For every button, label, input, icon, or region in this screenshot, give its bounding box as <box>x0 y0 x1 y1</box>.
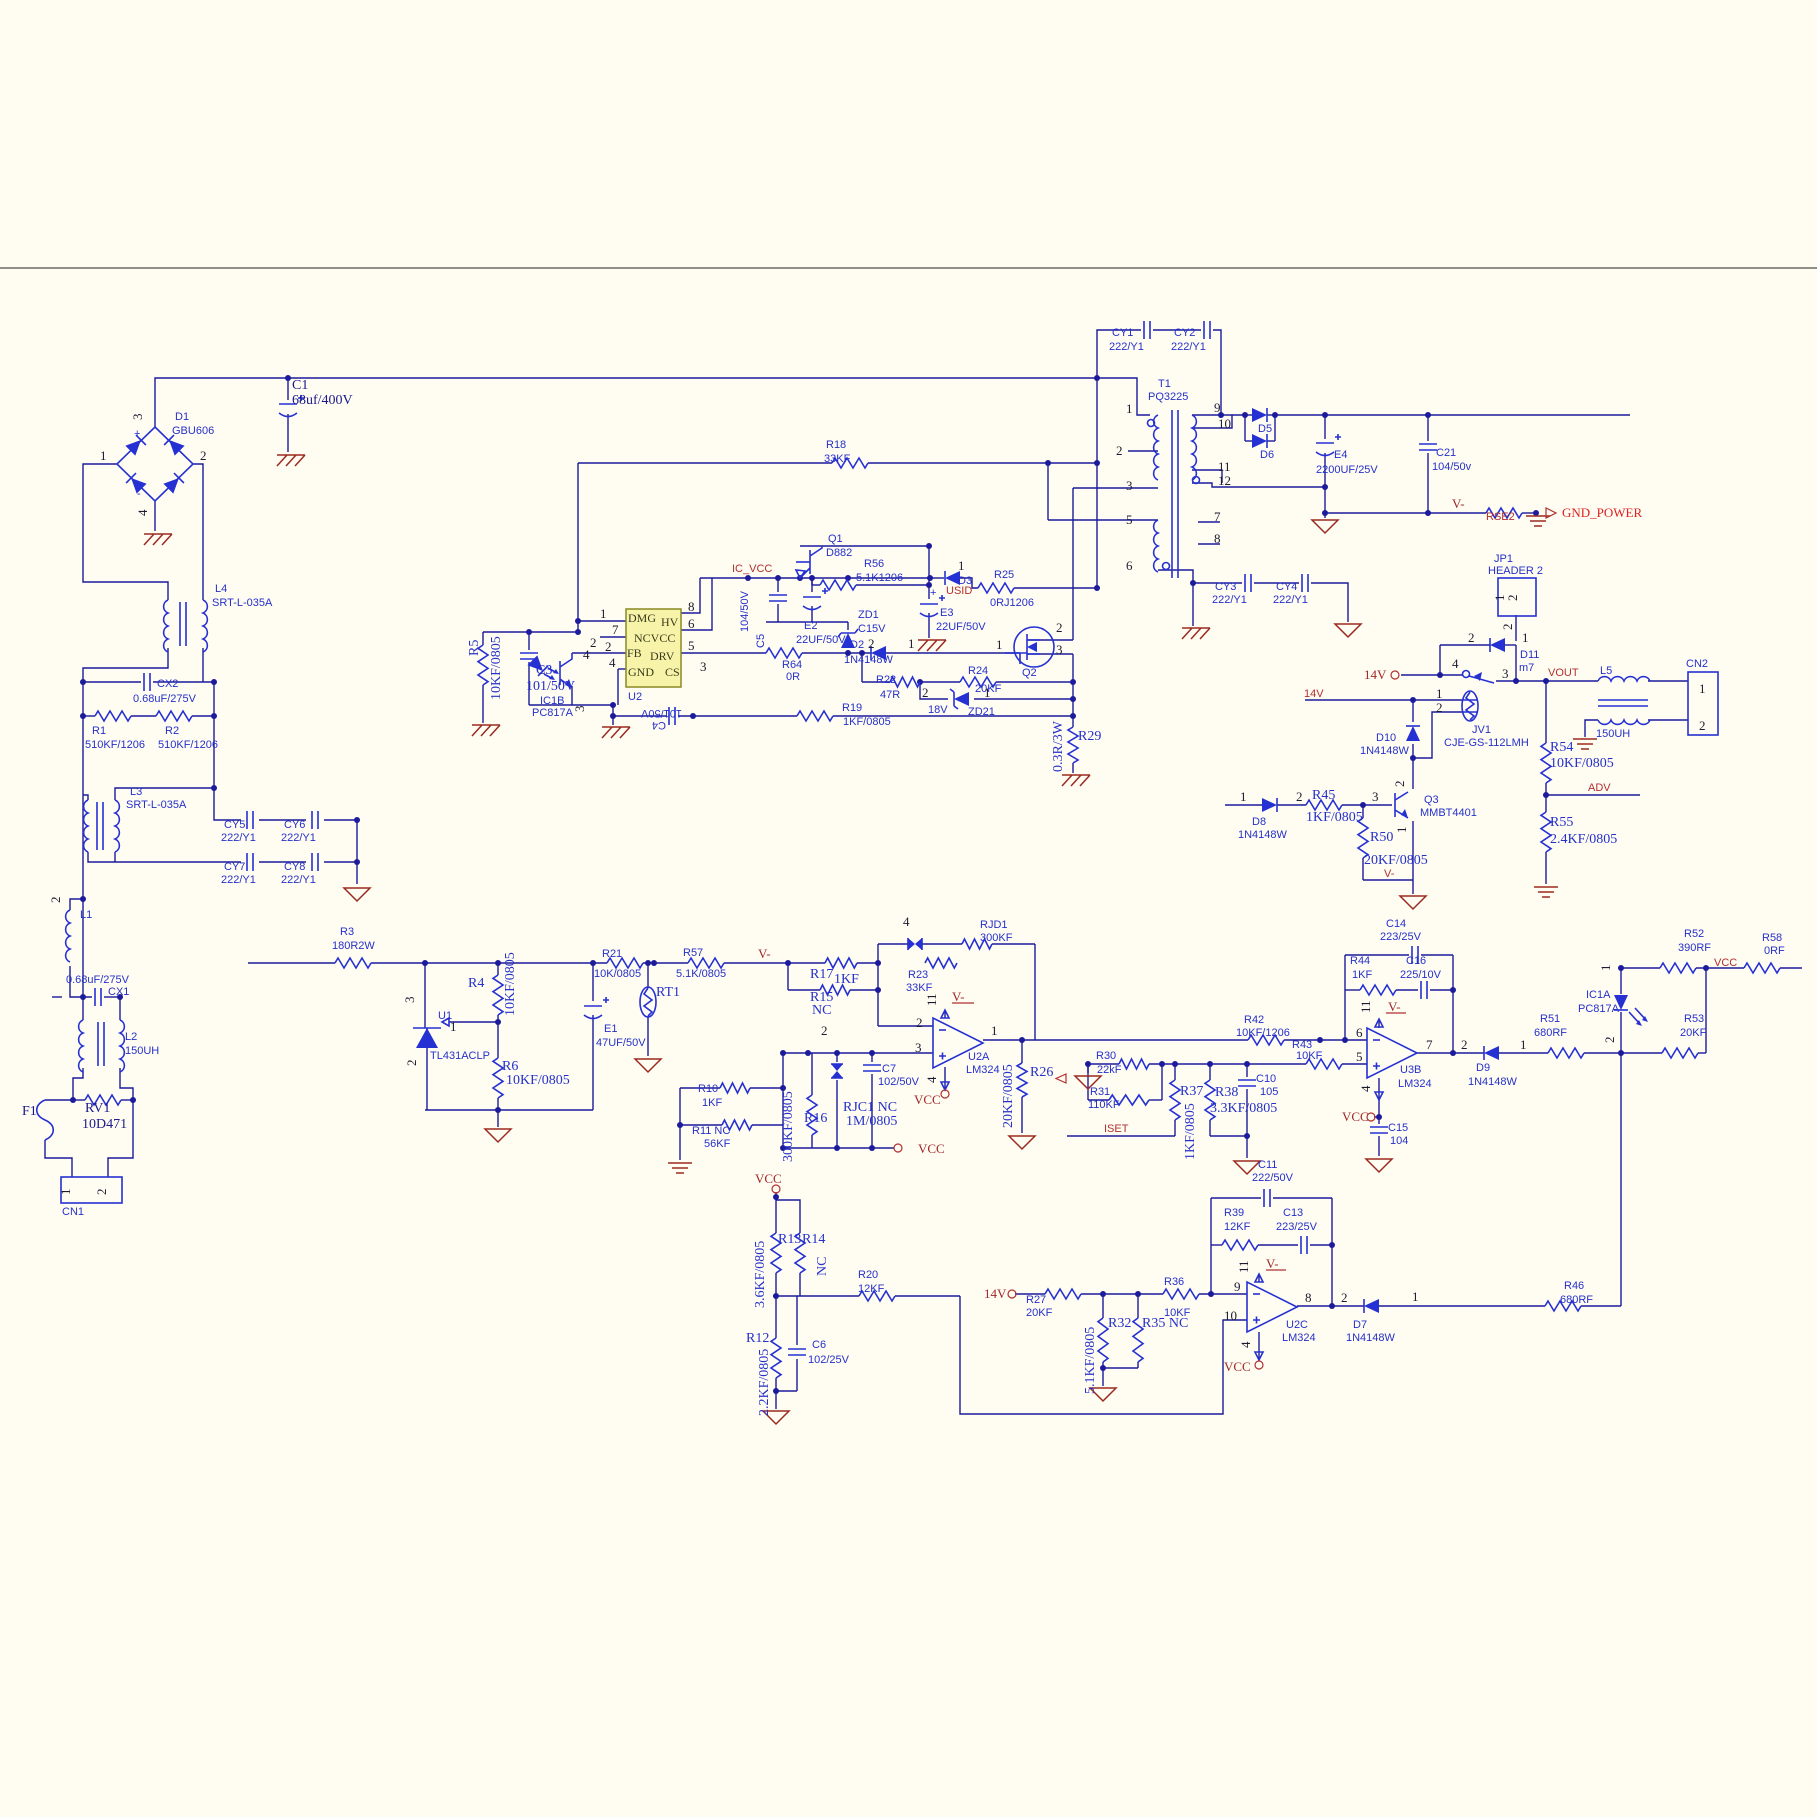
label-v-: V- <box>1388 999 1401 1014</box>
label-22kf: 22kF <box>1097 1064 1122 1076</box>
label-r46: R46 <box>1564 1280 1584 1292</box>
label-1: 1 <box>1436 686 1443 701</box>
label-vcc: VCC <box>1342 1109 1369 1124</box>
label-223-25v: 223/25V <box>1276 1221 1318 1233</box>
label-rjd1: RJD1 <box>980 919 1008 931</box>
label-10: 10 <box>1218 416 1231 431</box>
label-11: 11 <box>1236 1260 1251 1273</box>
label-10kf-0805: 10KF/0805 <box>1550 756 1614 771</box>
label-r20: R20 <box>858 1269 878 1281</box>
label-r23: R23 <box>908 969 928 981</box>
label-2-2kf-0805: 2.2KF/0805 <box>757 1349 772 1416</box>
label-8: 8 <box>1305 1290 1312 1305</box>
label-r25: R25 <box>994 569 1014 581</box>
label-10kf-0805: 10KF/0805 <box>506 1073 570 1088</box>
label-68uf-400v: 68uf/400V <box>292 393 353 408</box>
label-srt-l-035a: SRT-L-035A <box>212 597 273 609</box>
label-f1: F1 <box>22 1104 37 1119</box>
label-104-50v: 104/50V <box>739 590 751 632</box>
label-10kf-0805: 10KF/0805 <box>503 952 518 1016</box>
label-r19: R19 <box>842 702 862 714</box>
label-r1: R1 <box>92 725 106 737</box>
label-cy1: CY1 <box>1112 327 1133 339</box>
label-m7: m7 <box>1519 662 1534 674</box>
label-6: 6 <box>1126 558 1133 573</box>
label-1: 1 <box>908 636 915 651</box>
label-c15v: C15V <box>858 623 886 635</box>
label-e3: E3 <box>940 607 953 619</box>
label-5: 5 <box>1356 1049 1363 1064</box>
label-r30: R30 <box>1096 1050 1116 1062</box>
label-v-: V- <box>1266 1256 1279 1271</box>
label-11: 11 <box>1358 1000 1373 1013</box>
label-srt-l-035a: SRT-L-035A <box>126 799 187 811</box>
label-1: 1 <box>991 1023 998 1038</box>
label-r50: R50 <box>1370 830 1393 845</box>
label-c5: C5 <box>755 634 767 648</box>
label-c6: C6 <box>812 1339 826 1351</box>
label-4: 4 <box>135 509 150 516</box>
label-ncvcc: NCVCC <box>634 631 675 645</box>
label-l3: L3 <box>130 786 142 798</box>
label-d882: D882 <box>826 547 852 559</box>
label-222-y1: 222/Y1 <box>281 874 316 886</box>
label-q3: Q3 <box>1424 794 1439 806</box>
label-7: 7 <box>1214 509 1221 524</box>
label-2: 2 <box>48 897 63 904</box>
label-u2c: U2C <box>1286 1319 1308 1331</box>
label-vcc: VCC <box>755 1171 782 1186</box>
label-r55: R55 <box>1550 815 1573 830</box>
label-2: 2 <box>1296 789 1303 804</box>
label-lm324: LM324 <box>1282 1332 1316 1344</box>
label-1n4148w: 1N4148W <box>844 654 894 666</box>
label-2-4kf-0805: 2.4KF/0805 <box>1550 832 1617 847</box>
label-1m-0805: 1M/0805 <box>846 1114 897 1129</box>
label-d10: D10 <box>1376 732 1396 744</box>
label-r3: R3 <box>340 926 354 938</box>
label-510kf-1206: 510KF/1206 <box>85 739 145 751</box>
label-gbu606: GBU606 <box>172 425 214 437</box>
label-u2: U2 <box>628 691 642 703</box>
label-r31: R31 <box>1090 1086 1110 1098</box>
label-header-2: HEADER 2 <box>1488 565 1543 577</box>
label-2: 2 <box>1056 620 1063 635</box>
label-jv1: JV1 <box>1472 724 1491 736</box>
label-2: 2 <box>1392 781 1407 788</box>
label-10kf-1206: 10KF/1206 <box>1236 1027 1290 1039</box>
label-ic1a: IC1A <box>1586 989 1611 1001</box>
label-20kf: 20KF <box>1680 1027 1707 1039</box>
label-r18: R18 <box>826 439 846 451</box>
label-510kf-1206: 510KF/1206 <box>158 739 218 751</box>
label-2: 2 <box>1116 443 1123 458</box>
label-r5: R5 <box>467 640 482 656</box>
label-r56: R56 <box>864 558 884 570</box>
label-r6: R6 <box>502 1059 518 1074</box>
label-5-1k-0805: 5.1K/0805 <box>676 968 726 980</box>
label-l5: L5 <box>1600 665 1612 677</box>
label-150uh: 150UH <box>1596 728 1630 740</box>
label-1n4148w: 1N4148W <box>1468 1076 1518 1088</box>
label-20kf-0805: 20KF/0805 <box>1364 853 1428 868</box>
label-l4: L4 <box>215 583 227 595</box>
label-1kf: 1KF <box>702 1097 722 1109</box>
label-tl431aclp: TL431ACLP <box>430 1050 490 1062</box>
label-10d471: 10D471 <box>82 1117 127 1132</box>
label-1: 1 <box>1394 827 1409 834</box>
label-pc817a: PC817A <box>1578 1003 1620 1015</box>
label-47uf-50v: 47UF/50V <box>596 1037 646 1049</box>
label-l2: L2 <box>125 1031 137 1043</box>
label-r54: R54 <box>1550 740 1573 755</box>
label-3: 3 <box>700 659 707 674</box>
label-2: 2 <box>94 1189 109 1196</box>
label-d6: D6 <box>1260 449 1274 461</box>
label-1kf-0805: 1KF/0805 <box>843 716 891 728</box>
label-cy3: CY3 <box>1215 581 1236 593</box>
label-d11: D11 <box>1520 649 1539 661</box>
label-v-: V- <box>1452 496 1465 511</box>
label-680rf: 680RF <box>1534 1027 1567 1039</box>
label-225-10v: 225/10V <box>1400 969 1442 981</box>
label--: - <box>137 488 141 500</box>
label-10kf-0805: 10KF/0805 <box>489 636 504 700</box>
label-u3b: U3B <box>1400 1064 1421 1076</box>
label-1kf: 1KF <box>1352 969 1372 981</box>
label-3: 3 <box>1056 642 1063 657</box>
label-d2: D2 <box>850 639 864 651</box>
label-nc: NC <box>815 1257 830 1276</box>
label-2: 2 <box>605 639 612 654</box>
label-101-50v: 101/50V <box>526 679 575 694</box>
label-22uf-50v: 22UF/50V <box>796 634 846 646</box>
label-110kf: 110KF <box>1088 1099 1120 1111</box>
label-2: 2 <box>1602 1037 1617 1044</box>
label-8: 8 <box>1214 531 1221 546</box>
label-14v: 14V <box>1304 688 1324 700</box>
label-v-: V- <box>952 989 965 1004</box>
label-cx1: CX1 <box>108 986 129 998</box>
label-0-68uf-275v: 0.68uF/275V <box>133 693 197 705</box>
label-r21: R21 <box>602 948 622 960</box>
label-r39: R39 <box>1224 1207 1244 1219</box>
label-680rf: 680RF <box>1560 1294 1593 1306</box>
label-dmg: DMG <box>628 611 656 625</box>
label-223-25v: 223/25V <box>1380 931 1422 943</box>
label-1kf-0805: 1KF/0805 <box>1306 810 1363 825</box>
label-r27: R27 <box>1026 1294 1046 1306</box>
label-e1: E1 <box>604 1023 617 1035</box>
label-8: 8 <box>688 599 695 614</box>
label-5-1kf-0805: 5.1KF/0805 <box>1083 1327 1098 1394</box>
label-2: 2 <box>404 1060 419 1067</box>
label-4: 4 <box>924 1076 939 1083</box>
label-5: 5 <box>1126 512 1133 527</box>
label-r4: R4 <box>468 976 484 991</box>
label-r11-nc: R11 NC <box>692 1125 730 1137</box>
label-r37: R37 <box>1180 1084 1203 1099</box>
label-adv: ADV <box>1588 782 1611 794</box>
label-1: 1 <box>1522 630 1529 645</box>
label-6: 6 <box>688 616 695 631</box>
label-1: 1 <box>1520 1037 1527 1052</box>
label-2: 2 <box>1505 595 1520 602</box>
label-cje-gs-112lmh: CJE-GS-112LMH <box>1444 737 1529 749</box>
label-2: 2 <box>821 1023 828 1038</box>
label-c11: C11 <box>1258 1159 1277 1171</box>
label-20kf-0805: 20KF/0805 <box>1001 1064 1016 1128</box>
label-r2: R2 <box>165 725 179 737</box>
label-14v: 14V <box>1364 667 1387 682</box>
label-e2: E2 <box>804 620 817 632</box>
label-cy8: CY8 <box>284 861 305 873</box>
label-r52: R52 <box>1684 928 1704 940</box>
label-1: 1 <box>58 1189 73 1196</box>
label-vcc: VCC <box>1714 957 1737 969</box>
label-33kf: 33KF <box>824 453 851 465</box>
label-v-: V- <box>1384 868 1395 880</box>
label-4: 4 <box>1238 1341 1253 1348</box>
label-c13: C13 <box>1283 1207 1303 1219</box>
label-2: 2 <box>868 636 875 651</box>
label-q2: Q2 <box>1022 667 1037 679</box>
label-c7: C7 <box>882 1063 896 1075</box>
label-pq3225: PQ3225 <box>1148 391 1188 403</box>
label-12kf: 12KF <box>858 1283 885 1295</box>
label-1n4148w: 1N4148W <box>1346 1332 1396 1344</box>
label-q1: Q1 <box>828 533 843 545</box>
label-2: 2 <box>200 448 207 463</box>
label-r45: R45 <box>1312 788 1335 803</box>
label-6: 6 <box>1356 1025 1363 1040</box>
label-10kf: 10KF <box>1164 1307 1191 1319</box>
label-rse2: RSE2 <box>1486 511 1515 523</box>
label-d1: D1 <box>175 411 189 423</box>
label-10kf: 10KF <box>1296 1050 1323 1062</box>
label-c15: C15 <box>1388 1122 1408 1134</box>
label-2: 2 <box>1468 630 1475 645</box>
label-10: 10 <box>1224 1308 1237 1323</box>
label-2: 2 <box>590 635 597 650</box>
label-3: 3 <box>130 414 145 421</box>
label-0-68uf-275v: 0.68uF/275V <box>66 974 130 986</box>
label-22uf-50v: 22UF/50V <box>936 621 986 633</box>
label-l1: L1 <box>80 909 92 921</box>
label-cn1: CN1 <box>62 1206 84 1218</box>
label-r22: R22 <box>876 674 896 686</box>
label-2: 2 <box>1461 1037 1468 1052</box>
label-101-50v: 101/50V <box>640 707 682 719</box>
label-3: 3 <box>1502 666 1509 681</box>
label-r57: R57 <box>683 947 703 959</box>
label-r10: R10 <box>698 1083 718 1095</box>
label-c1: C1 <box>292 378 308 393</box>
label-rjc1-nc: RJC1 NC <box>843 1100 897 1115</box>
label-1: 1 <box>450 1019 457 1034</box>
label-r14: R14 <box>802 1232 825 1247</box>
label-fb: FB <box>627 646 642 660</box>
label-1: 1 <box>1240 789 1247 804</box>
label-222-y1: 222/Y1 <box>221 874 256 886</box>
schematic-canvas: C168uf/400VD1GBU6061234+-L4SRT-L-035ACX2… <box>0 0 1817 1817</box>
label-3-6kf-0805: 3.6KF/0805 <box>753 1241 768 1308</box>
label-4: 4 <box>1452 656 1459 671</box>
label-300kf-0805: 300KF/0805 <box>781 1091 796 1162</box>
label-r26: R26 <box>1030 1065 1053 1080</box>
label-zd21: ZD21 <box>968 706 995 718</box>
label-3: 3 <box>1126 478 1133 493</box>
label-d8: D8 <box>1252 816 1266 828</box>
label-cx2: CX2 <box>157 678 178 690</box>
label-4: 4 <box>609 655 616 670</box>
label-cy7: CY7 <box>224 861 245 873</box>
label-0rj1206: 0RJ1206 <box>990 597 1034 609</box>
label-cy2: CY2 <box>1174 327 1195 339</box>
label-0rf: 0RF <box>1764 945 1785 957</box>
label-9: 9 <box>1234 1279 1241 1294</box>
label-vcc: VCC <box>1224 1359 1251 1374</box>
label-222-y1: 222/Y1 <box>1109 341 1144 353</box>
label-rv1: RV1 <box>85 1101 110 1116</box>
label-7: 7 <box>612 622 619 637</box>
label-150uh: 150UH <box>125 1045 159 1057</box>
label-e4: E4 <box>1334 449 1347 461</box>
label-r36: R36 <box>1164 1276 1184 1288</box>
label-222-y1: 222/Y1 <box>1212 594 1247 606</box>
label-gnd-power: GND_POWER <box>1562 505 1642 520</box>
label-2: 2 <box>1699 718 1706 733</box>
label--: + <box>930 587 936 599</box>
label-hv: HV <box>661 615 679 629</box>
label-3: 3 <box>572 706 587 713</box>
label-3: 3 <box>915 1040 922 1055</box>
label-ic-vcc: IC_VCC <box>732 563 772 575</box>
label-18v: 18V <box>928 704 948 716</box>
label-2200uf-25v: 2200UF/25V <box>1316 464 1378 476</box>
label-9: 9 <box>1214 400 1221 415</box>
label-vout: VOUT <box>1548 667 1579 679</box>
label-1n4148w: 1N4148W <box>1238 829 1288 841</box>
label-11: 11 <box>1218 459 1231 474</box>
label-r51: R51 <box>1540 1013 1560 1025</box>
label-c4: C4 <box>652 719 666 731</box>
label-104: 104 <box>1390 1135 1408 1147</box>
label-5: 5 <box>688 638 695 653</box>
label-gnd: GND <box>628 665 654 679</box>
label-usid: USID <box>946 585 972 597</box>
label-10k-0805: 10K/0805 <box>594 968 641 980</box>
label-cy4: CY4 <box>1276 581 1297 593</box>
label-r53: R53 <box>1684 1013 1704 1025</box>
label-c14: C14 <box>1386 918 1406 930</box>
label-1: 1 <box>958 558 965 573</box>
label-iset: ISET <box>1104 1123 1129 1135</box>
label-lm324: LM324 <box>1398 1078 1432 1090</box>
label-3: 3 <box>402 997 417 1004</box>
label-180r2w: 180R2W <box>332 940 375 952</box>
label-1: 1 <box>600 606 607 621</box>
label-4: 4 <box>903 914 910 929</box>
label-r42: R42 <box>1244 1014 1264 1026</box>
label-r12: R12 <box>746 1331 769 1346</box>
label-0-3r-3w: 0.3R/3W <box>1051 720 1066 772</box>
label-2: 2 <box>1341 1290 1348 1305</box>
label-r44: R44 <box>1350 955 1370 967</box>
label-300kf: 300KF <box>980 932 1013 944</box>
labels: C168uf/400VD1GBU6061234+-L4SRT-L-035ACX2… <box>22 327 1785 1416</box>
label-cs: CS <box>665 665 680 679</box>
label--: + <box>134 428 140 440</box>
label-ic1b: IC1B <box>540 695 564 707</box>
label-104-50v: 104/50v <box>1432 461 1472 473</box>
label-pc817a: PC817A <box>532 707 574 719</box>
label-c10: C10 <box>1256 1073 1276 1085</box>
label-v-: V- <box>758 946 771 961</box>
label-222-y1: 222/Y1 <box>221 832 256 844</box>
label-2: 2 <box>922 685 929 700</box>
label-12kf: 12KF <box>1224 1221 1251 1233</box>
label-r29: R29 <box>1078 729 1101 744</box>
label-r32: R32 <box>1108 1316 1131 1331</box>
label-cy6: CY6 <box>284 819 305 831</box>
label-rt1: RT1 <box>656 985 680 1000</box>
label-1kf-0805: 1KF/0805 <box>1183 1103 1198 1160</box>
label-4: 4 <box>1358 1085 1373 1092</box>
label-2: 2 <box>916 1015 923 1030</box>
label-u2a: U2A <box>968 1051 990 1063</box>
label-390rf: 390RF <box>1678 942 1711 954</box>
label-1: 1 <box>984 685 991 700</box>
label-r58: R58 <box>1762 932 1782 944</box>
label-r24: R24 <box>968 665 988 677</box>
label-1: 1 <box>1699 681 1706 696</box>
label-jp1: JP1 <box>1494 553 1513 565</box>
label-mmbt4401: MMBT4401 <box>1420 807 1477 819</box>
wiring <box>45 330 1802 1414</box>
label-5-1k1206: 5.1K1206 <box>856 572 903 584</box>
label-222-y1: 222/Y1 <box>281 832 316 844</box>
label-c21: C21 <box>1436 447 1456 459</box>
label-zd1: ZD1 <box>858 609 879 621</box>
label-c3: C3 <box>536 663 552 678</box>
label-102-25v: 102/25V <box>808 1354 850 1366</box>
label-r64: R64 <box>782 659 802 671</box>
label-r16: R16 <box>804 1111 827 1126</box>
label-1: 1 <box>100 448 107 463</box>
label-1: 1 <box>1412 1289 1419 1304</box>
label-vcc: VCC <box>918 1141 945 1156</box>
label-d9: D9 <box>1476 1062 1490 1074</box>
label-vcc: VCC <box>914 1092 941 1107</box>
label-2: 2 <box>1500 624 1515 631</box>
label-3-3kf-0805: 3.3KF/0805 <box>1210 1101 1277 1116</box>
label-3: 3 <box>1372 789 1379 804</box>
label-14v: 14V <box>984 1286 1007 1301</box>
label-11: 11 <box>924 993 939 1006</box>
label-r38: R38 <box>1215 1085 1238 1100</box>
label-2: 2 <box>1436 700 1443 715</box>
label-1: 1 <box>996 637 1003 652</box>
label-cn2: CN2 <box>1686 658 1708 670</box>
schematic-page: C168uf/400VD1GBU6061234+-L4SRT-L-035ACX2… <box>0 0 1817 1817</box>
label-33kf: 33KF <box>906 982 933 994</box>
label-nc: NC <box>812 1003 831 1018</box>
label-cy5: CY5 <box>224 819 245 831</box>
label-1n4148w: 1N4148W <box>1360 745 1410 757</box>
label-d5: D5 <box>1258 423 1272 435</box>
label-222-50v: 222/50V <box>1252 1172 1294 1184</box>
